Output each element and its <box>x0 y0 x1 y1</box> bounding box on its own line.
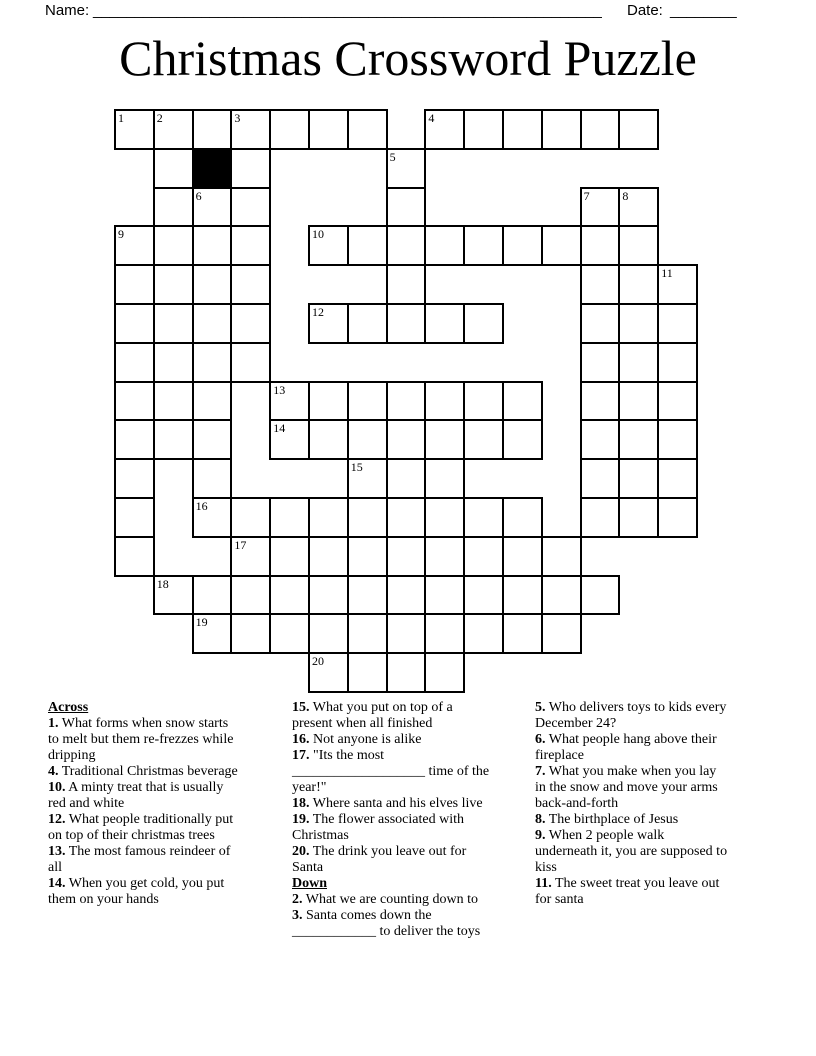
clue-item: 12. What people traditionally put on top… <box>48 812 238 844</box>
clue-item: 7. What you make when you lay in the sno… <box>535 764 729 812</box>
clue-item: 4. Traditional Christmas beverage <box>48 764 238 780</box>
clue-item: 2. What we are counting down to <box>292 892 492 908</box>
grid-cell[interactable]: 12 <box>308 303 349 344</box>
clue-item: 8. The birthplace of Jesus <box>535 812 729 828</box>
clue-number: 12. <box>48 812 66 827</box>
cell-number: 19 <box>196 615 208 629</box>
grid-cell[interactable] <box>269 109 310 150</box>
grid-cell[interactable]: 9 <box>114 225 155 266</box>
grid-cell[interactable] <box>424 536 465 577</box>
clue-text: What forms when snow starts to melt but … <box>48 716 233 763</box>
cell-number: 1 <box>118 111 124 125</box>
grid-cell[interactable] <box>114 536 155 577</box>
grid-cell[interactable] <box>192 381 233 422</box>
grid-cell[interactable] <box>153 148 194 189</box>
grid-cell[interactable] <box>386 575 427 616</box>
grid-cell[interactable] <box>192 342 233 383</box>
grid-cell[interactable] <box>618 264 659 305</box>
grid-cell[interactable]: 5 <box>386 148 427 189</box>
clue-text: When 2 people walk underneath it, you ar… <box>535 828 727 875</box>
grid-cell[interactable] <box>153 342 194 383</box>
grid-cell[interactable] <box>192 225 233 266</box>
grid-cell[interactable] <box>153 187 194 228</box>
clue-item: 14. When you get cold, you put them on y… <box>48 876 238 908</box>
grid-cell[interactable] <box>308 419 349 460</box>
grid-cell[interactable]: 7 <box>580 187 621 228</box>
clue-number: 6. <box>535 732 546 747</box>
grid-cell[interactable] <box>192 419 233 460</box>
clue-text: What people hang above their fireplace <box>535 732 717 763</box>
grid-cell[interactable] <box>541 225 582 266</box>
grid-cell-black <box>192 148 233 189</box>
grid-cell[interactable]: 11 <box>657 264 698 305</box>
clue-number: 5. <box>535 700 546 715</box>
clue-list-heading: Across <box>48 700 238 716</box>
cell-number: 20 <box>312 654 324 668</box>
grid-cell[interactable] <box>424 225 465 266</box>
clue-item: 20. The drink you leave out for Santa <box>292 844 492 876</box>
grid-cell[interactable] <box>230 225 271 266</box>
grid-cell[interactable] <box>308 109 349 150</box>
cell-number: 10 <box>312 227 324 241</box>
grid-cell[interactable] <box>347 419 388 460</box>
clue-text: Not anyone is alike <box>310 732 422 747</box>
grid-cell[interactable]: 6 <box>192 187 233 228</box>
grid-cell[interactable] <box>269 613 310 654</box>
grid-cell[interactable] <box>347 303 388 344</box>
grid-cell[interactable] <box>618 381 659 422</box>
grid-cell[interactable] <box>308 536 349 577</box>
grid-cell[interactable] <box>347 109 388 150</box>
cell-number: 13 <box>273 383 285 397</box>
grid-cell[interactable] <box>580 109 621 150</box>
clue-item: 11. The sweet treat you leave out for sa… <box>535 876 729 908</box>
grid-cell[interactable] <box>424 381 465 422</box>
grid-cell[interactable] <box>230 187 271 228</box>
grid-cell[interactable] <box>386 303 427 344</box>
grid-cell[interactable] <box>269 536 310 577</box>
grid-cell[interactable] <box>502 419 543 460</box>
grid-cell[interactable] <box>386 497 427 538</box>
worksheet-page: Name: __________________________________… <box>0 0 816 1056</box>
grid-cell[interactable]: 18 <box>153 575 194 616</box>
grid-cell[interactable] <box>192 109 233 150</box>
clue-text: What people traditionally put on top of … <box>48 812 233 843</box>
clue-number: 9. <box>535 828 546 843</box>
grid-cell[interactable] <box>580 458 621 499</box>
grid-cell[interactable] <box>424 458 465 499</box>
grid-cell[interactable] <box>424 497 465 538</box>
grid-cell[interactable]: 16 <box>192 497 233 538</box>
clue-number: 17. <box>292 748 310 763</box>
grid-cell[interactable] <box>580 264 621 305</box>
grid-cell[interactable] <box>618 109 659 150</box>
grid-cell[interactable] <box>153 264 194 305</box>
grid-cell[interactable] <box>580 303 621 344</box>
cell-number: 3 <box>234 111 240 125</box>
grid-cell[interactable]: 14 <box>269 419 310 460</box>
cell-number: 11 <box>661 266 673 280</box>
grid-cell[interactable]: 8 <box>618 187 659 228</box>
clue-text: Who delivers toys to kids every December… <box>535 700 726 731</box>
grid-cell[interactable] <box>269 575 310 616</box>
cell-number: 12 <box>312 305 324 319</box>
grid-cell[interactable] <box>347 613 388 654</box>
clue-text: The drink you leave out for Santa <box>292 844 466 875</box>
clue-text: When you get cold, you put them on your … <box>48 876 224 907</box>
clue-text: Traditional Christmas beverage <box>59 764 238 779</box>
clue-item: 5. Who delivers toys to kids every Decem… <box>535 700 729 732</box>
grid-cell[interactable] <box>502 536 543 577</box>
clue-text: What you make when you lay in the snow a… <box>535 764 718 811</box>
grid-cell[interactable] <box>308 497 349 538</box>
grid-cell[interactable] <box>386 652 427 693</box>
grid-cell[interactable] <box>347 381 388 422</box>
grid-cell[interactable] <box>114 419 155 460</box>
grid-cell[interactable] <box>114 264 155 305</box>
grid-cell[interactable] <box>114 458 155 499</box>
clue-number: 4. <box>48 764 59 779</box>
grid-cell[interactable] <box>502 613 543 654</box>
grid-cell[interactable] <box>114 381 155 422</box>
clue-text: The flower associated with Christmas <box>292 812 464 843</box>
grid-cell[interactable] <box>308 613 349 654</box>
clue-number: 14. <box>48 876 66 891</box>
grid-cell[interactable] <box>657 497 698 538</box>
grid-cell[interactable] <box>386 264 427 305</box>
clue-number: 11. <box>535 876 552 891</box>
grid-cell[interactable] <box>230 342 271 383</box>
grid-cell[interactable] <box>114 342 155 383</box>
grid-cell[interactable] <box>580 381 621 422</box>
clue-item: 17. "Its the most ___________________ ti… <box>292 748 492 796</box>
grid-cell[interactable] <box>308 381 349 422</box>
clue-list-heading: Down <box>292 876 492 892</box>
grid-cell[interactable] <box>618 497 659 538</box>
grid-cell[interactable] <box>580 225 621 266</box>
grid-cell[interactable] <box>424 613 465 654</box>
clue-text: Santa comes down the ____________ to del… <box>292 908 480 939</box>
clue-item: 6. What people hang above their fireplac… <box>535 732 729 764</box>
grid-cell[interactable] <box>153 225 194 266</box>
grid-cell[interactable] <box>424 652 465 693</box>
clue-item: 18. Where santa and his elves live <box>292 796 492 812</box>
grid-cell[interactable] <box>657 458 698 499</box>
grid-cell[interactable] <box>502 575 543 616</box>
grid-cell[interactable] <box>541 613 582 654</box>
grid-cell[interactable] <box>347 536 388 577</box>
grid-cell[interactable] <box>424 419 465 460</box>
clue-text: The birthplace of Jesus <box>546 812 679 827</box>
grid-cell[interactable] <box>114 303 155 344</box>
grid-cell[interactable] <box>541 536 582 577</box>
grid-cell[interactable] <box>308 575 349 616</box>
grid-cell[interactable] <box>230 497 271 538</box>
grid-cell[interactable] <box>347 652 388 693</box>
clue-text: A minty treat that is usually red and wh… <box>48 780 223 811</box>
clue-text: What you put on top of a present when al… <box>292 700 453 731</box>
clue-number: 7. <box>535 764 546 779</box>
cell-number: 14 <box>273 421 285 435</box>
grid-cell[interactable] <box>463 497 504 538</box>
clue-number: 2. <box>292 892 303 907</box>
cell-number: 18 <box>157 577 169 591</box>
clue-text: "Its the most ___________________ time o… <box>292 748 489 795</box>
name-label: Name: <box>45 2 89 19</box>
grid-cell[interactable] <box>618 458 659 499</box>
clue-number: 3. <box>292 908 303 923</box>
cell-number: 6 <box>196 189 202 203</box>
grid-cell[interactable] <box>230 148 271 189</box>
clue-number: 16. <box>292 732 310 747</box>
grid-cell[interactable] <box>386 225 427 266</box>
grid-cell[interactable] <box>386 419 427 460</box>
grid-cell[interactable] <box>580 342 621 383</box>
grid-cell[interactable] <box>463 303 504 344</box>
clue-item: 13. The most famous reindeer of all <box>48 844 238 876</box>
name-fill-line[interactable]: ________________________________________… <box>93 2 602 19</box>
grid-cell[interactable] <box>657 342 698 383</box>
clue-item: 15. What you put on top of a present whe… <box>292 700 492 732</box>
grid-cell[interactable] <box>618 225 659 266</box>
grid-cell[interactable] <box>502 109 543 150</box>
clue-text: What we are counting down to <box>303 892 478 907</box>
grid-cell[interactable] <box>502 381 543 422</box>
grid-cell[interactable]: 2 <box>153 109 194 150</box>
date-fill-line[interactable]: ________ <box>670 2 737 19</box>
grid-cell[interactable] <box>541 109 582 150</box>
grid-cell[interactable]: 15 <box>347 458 388 499</box>
grid-cell[interactable] <box>463 225 504 266</box>
grid-cell[interactable] <box>657 381 698 422</box>
grid-cell[interactable] <box>580 419 621 460</box>
clues-column-3: 5. Who delivers toys to kids every Decem… <box>535 700 729 908</box>
grid-cell[interactable] <box>657 303 698 344</box>
grid-cell[interactable] <box>386 613 427 654</box>
grid-cell[interactable] <box>386 536 427 577</box>
grid-cell[interactable] <box>347 497 388 538</box>
clue-text: Where santa and his elves live <box>310 796 483 811</box>
clue-number: 13. <box>48 844 66 859</box>
clue-text: The sweet treat you leave out for santa <box>535 876 719 907</box>
grid-cell[interactable] <box>347 575 388 616</box>
grid-cell[interactable]: 10 <box>308 225 349 266</box>
grid-cell[interactable] <box>580 575 621 616</box>
grid-cell[interactable] <box>424 575 465 616</box>
grid-cell[interactable] <box>114 497 155 538</box>
grid-cell[interactable] <box>541 575 582 616</box>
cell-number: 16 <box>196 499 208 513</box>
cell-number: 8 <box>622 189 628 203</box>
grid-cell[interactable] <box>463 536 504 577</box>
grid-cell[interactable] <box>657 419 698 460</box>
grid-cell[interactable] <box>153 419 194 460</box>
grid-cell[interactable] <box>463 613 504 654</box>
clue-item: 1. What forms when snow starts to melt b… <box>48 716 238 764</box>
grid-cell[interactable] <box>502 225 543 266</box>
grid-cell[interactable] <box>192 303 233 344</box>
grid-cell[interactable] <box>386 458 427 499</box>
grid-cell[interactable] <box>230 264 271 305</box>
grid-cell[interactable]: 17 <box>230 536 271 577</box>
clue-number: 18. <box>292 796 310 811</box>
grid-cell[interactable]: 1 <box>114 109 155 150</box>
cell-number: 7 <box>584 189 590 203</box>
cell-number: 4 <box>428 111 434 125</box>
cell-number: 9 <box>118 227 124 241</box>
cell-number: 5 <box>390 150 396 164</box>
cell-number: 15 <box>351 460 363 474</box>
grid-cell[interactable]: 13 <box>269 381 310 422</box>
grid-cell[interactable] <box>230 575 271 616</box>
clue-number: 1. <box>48 716 59 731</box>
clue-text: The most famous reindeer of all <box>48 844 230 875</box>
clue-number: 20. <box>292 844 310 859</box>
grid-cell[interactable] <box>424 303 465 344</box>
grid-cell[interactable] <box>463 109 504 150</box>
grid-cell[interactable]: 20 <box>308 652 349 693</box>
grid-cell[interactable] <box>618 303 659 344</box>
grid-cell[interactable] <box>463 575 504 616</box>
grid-cell[interactable] <box>153 303 194 344</box>
grid-cell[interactable] <box>269 497 310 538</box>
cell-number: 2 <box>157 111 163 125</box>
grid-cell[interactable] <box>386 381 427 422</box>
clues-column-1: Across1. What forms when snow starts to … <box>48 700 238 908</box>
clue-number: 8. <box>535 812 546 827</box>
grid-cell[interactable] <box>192 264 233 305</box>
clue-number: 15. <box>292 700 310 715</box>
grid-cell[interactable] <box>153 381 194 422</box>
clue-number: 19. <box>292 812 310 827</box>
page-title: Christmas Crossword Puzzle <box>0 30 816 86</box>
grid-cell[interactable]: 3 <box>230 109 271 150</box>
clue-item: 16. Not anyone is alike <box>292 732 492 748</box>
grid-cell[interactable] <box>618 419 659 460</box>
grid-cell[interactable] <box>463 381 504 422</box>
grid-cell[interactable] <box>347 225 388 266</box>
grid-cell[interactable] <box>618 342 659 383</box>
clue-item: 9. When 2 people walk underneath it, you… <box>535 828 729 876</box>
grid-cell[interactable] <box>230 303 271 344</box>
clue-number: 10. <box>48 780 66 795</box>
clues-column-2: 15. What you put on top of a present whe… <box>292 700 492 940</box>
grid-cell[interactable] <box>580 497 621 538</box>
clue-item: 19. The flower associated with Christmas <box>292 812 492 844</box>
grid-cell[interactable] <box>386 187 427 228</box>
grid-cell[interactable] <box>502 497 543 538</box>
grid-cell[interactable]: 4 <box>424 109 465 150</box>
grid-cell[interactable] <box>230 613 271 654</box>
grid-cell[interactable]: 19 <box>192 613 233 654</box>
date-label: Date: <box>627 2 663 19</box>
clue-item: 10. A minty treat that is usually red an… <box>48 780 238 812</box>
clue-item: 3. Santa comes down the ____________ to … <box>292 908 492 940</box>
grid-cell[interactable] <box>463 419 504 460</box>
grid-cell[interactable] <box>192 458 233 499</box>
cell-number: 17 <box>234 538 246 552</box>
grid-cell[interactable] <box>192 575 233 616</box>
